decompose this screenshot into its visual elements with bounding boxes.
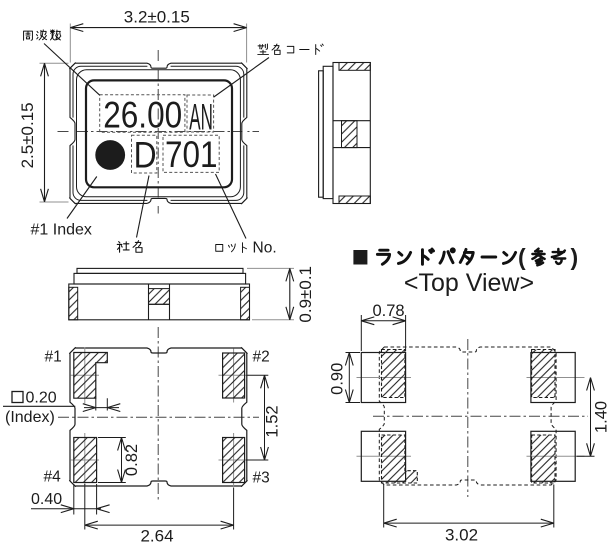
svg-text:D: D [134, 134, 157, 175]
svg-text:#4: #4 [44, 469, 62, 486]
svg-text:(: ( [518, 244, 526, 270]
svg-text:0.90: 0.90 [329, 363, 347, 395]
svg-text:0.78: 0.78 [372, 302, 404, 320]
svg-text:3.02: 3.02 [445, 526, 478, 545]
svg-text:701: 701 [165, 134, 218, 175]
svg-text:<Top View>: <Top View> [404, 269, 534, 297]
svg-text:#1: #1 [45, 349, 62, 366]
svg-text:AN: AN [189, 96, 213, 137]
svg-text:): ) [571, 244, 579, 270]
svg-text:#2: #2 [253, 349, 270, 366]
svg-text:0.82: 0.82 [123, 444, 141, 476]
svg-text:3.2±0.15: 3.2±0.15 [124, 8, 190, 27]
svg-text:(Index): (Index) [5, 409, 55, 426]
svg-text:1.52: 1.52 [264, 405, 282, 437]
svg-text:0.20: 0.20 [26, 390, 57, 407]
svg-text:26.00: 26.00 [103, 94, 182, 135]
svg-text:#3: #3 [253, 470, 270, 487]
svg-text:2.64: 2.64 [140, 527, 173, 546]
svg-text:1.40: 1.40 [593, 401, 611, 433]
svg-text:0.40: 0.40 [31, 491, 62, 508]
svg-text:2.5±0.15: 2.5±0.15 [18, 102, 37, 168]
svg-text:No.: No. [253, 240, 277, 257]
svg-text:0.9±0.1: 0.9±0.1 [296, 266, 315, 323]
svg-text:#1 Index: #1 Index [31, 222, 92, 239]
